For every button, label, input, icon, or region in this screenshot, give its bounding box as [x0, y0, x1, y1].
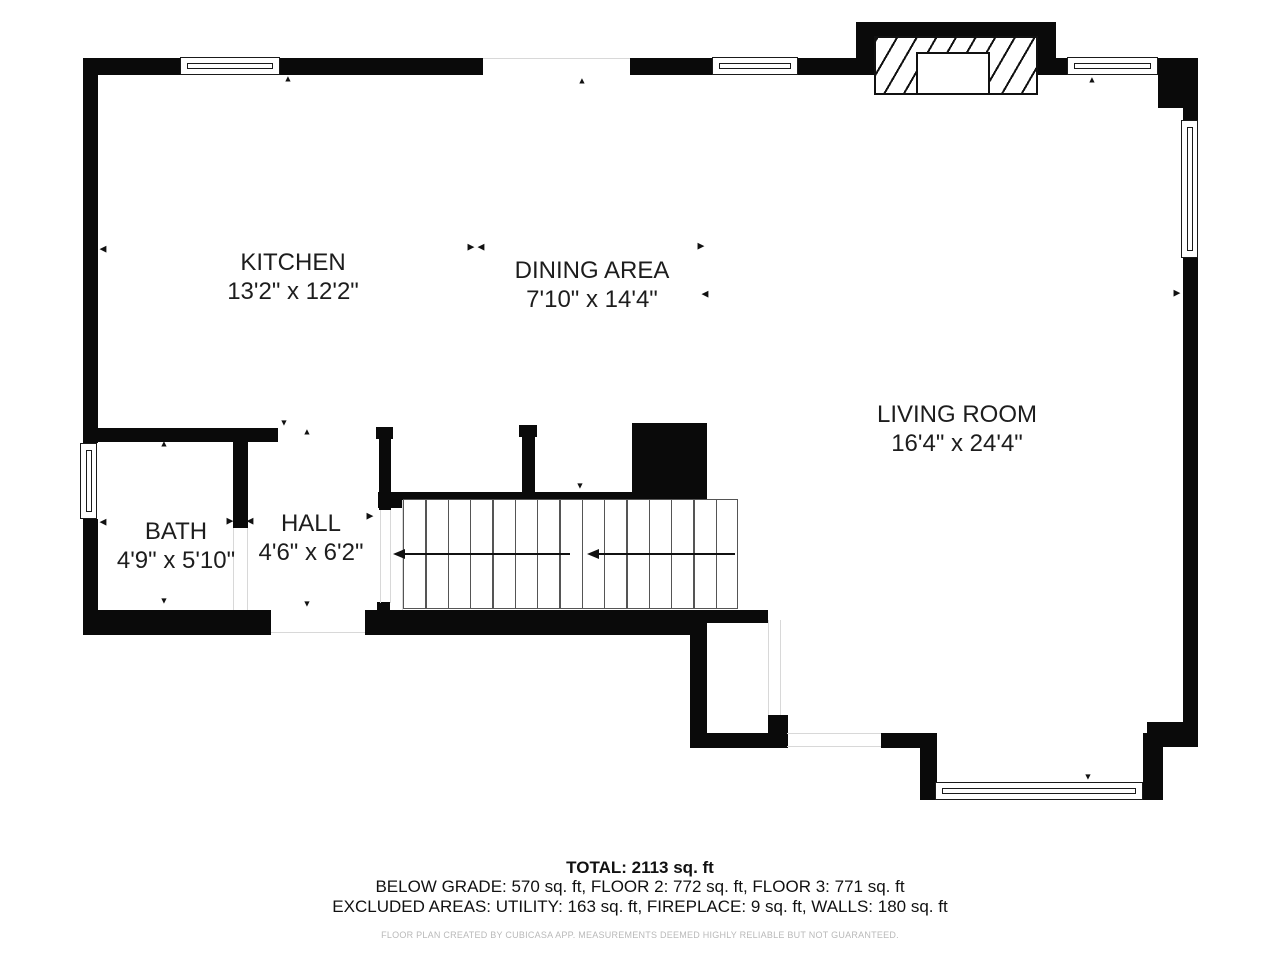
direction-arrow-icon: ▼	[576, 482, 585, 491]
wall-segment	[1183, 256, 1198, 747]
direction-arrow-icon: ▼	[160, 597, 169, 606]
room-label-living-room: LIVING ROOM 16'4" x 24'4"	[877, 400, 1037, 458]
room-label-hall: HALL 4'6" x 6'2"	[259, 509, 364, 567]
wall-segment	[83, 58, 98, 443]
wall-segment	[280, 58, 483, 75]
wall-segment	[690, 612, 707, 748]
stair-direction-arrow	[598, 553, 735, 555]
room-dimensions: 4'9" x 5'10"	[117, 546, 235, 575]
direction-arrow-icon: ▲	[284, 75, 293, 84]
opening-line	[390, 510, 391, 603]
room-name: BATH	[117, 517, 235, 546]
window	[1181, 120, 1198, 258]
room-label-bath: BATH 4'9" x 5'10"	[117, 517, 235, 575]
room-name: KITCHEN	[227, 248, 359, 277]
direction-arrow-icon: ▶	[468, 243, 475, 252]
total-area-text: TOTAL: 2113 sq. ft	[0, 858, 1280, 877]
wall-segment	[376, 427, 393, 439]
room-label-dining-area: DINING AREA 7'10" x 14'4"	[515, 256, 670, 314]
opening-line	[380, 510, 381, 603]
direction-arrow-icon: ◀	[100, 245, 107, 254]
wall-segment	[83, 428, 278, 442]
stair-direction-arrow	[404, 553, 570, 555]
opening-line	[780, 620, 781, 715]
room-label-kitchen: KITCHEN 13'2" x 12'2"	[227, 248, 359, 306]
wall-segment	[377, 602, 390, 611]
wall-segment	[1143, 733, 1163, 800]
window-glass-line	[187, 63, 273, 68]
direction-arrow-icon: ◀	[100, 518, 107, 527]
floor-plan-page: ▲▲▲▲▲▼▼▼▼▼◀◀◀◀◀▶▶▶▶▶ KITCHEN 13'2" x 12'…	[0, 0, 1280, 960]
direction-arrow-icon: ▶	[1174, 289, 1181, 298]
floor-plan-canvas: ▲▲▲▲▲▼▼▼▼▼◀◀◀◀◀▶▶▶▶▶	[0, 0, 1280, 960]
room-dimensions: 4'6" x 6'2"	[259, 538, 364, 567]
window-glass-line	[86, 450, 92, 512]
disclaimer-text: FLOOR PLAN CREATED BY CUBICASA APP. MEAS…	[0, 930, 1280, 940]
area-summary: TOTAL: 2113 sq. ft BELOW GRADE: 570 sq. …	[0, 858, 1280, 940]
wall-segment	[632, 423, 707, 500]
direction-arrow-icon: ▲	[160, 440, 169, 449]
window-glass-line	[1187, 127, 1193, 251]
window-glass-line	[942, 788, 1136, 793]
direction-arrow-icon: ◀	[247, 517, 254, 526]
window	[1067, 57, 1158, 75]
wall-segment	[630, 58, 712, 75]
window-glass-line	[1074, 63, 1151, 68]
direction-arrow-icon: ▲	[578, 77, 587, 86]
opening-line	[247, 528, 248, 610]
direction-arrow-icon: ▶	[698, 242, 705, 251]
direction-arrow-icon: ▼	[1084, 773, 1093, 782]
stair-arrow-head-icon	[393, 549, 405, 559]
floor-areas-text: BELOW GRADE: 570 sq. ft, FLOOR 2: 772 sq…	[0, 877, 1280, 897]
room-name: DINING AREA	[515, 256, 670, 285]
opening-line	[787, 733, 881, 734]
stair-arrow-head-icon	[587, 549, 599, 559]
direction-arrow-icon: ▶	[367, 512, 374, 521]
room-dimensions: 16'4" x 24'4"	[877, 429, 1037, 458]
opening-line	[483, 58, 630, 59]
direction-arrow-icon: ▲	[303, 428, 312, 437]
direction-arrow-icon: ▼	[303, 600, 312, 609]
window	[712, 57, 798, 75]
wall-segment	[519, 425, 537, 437]
fireplace-firebox	[916, 52, 990, 95]
opening-line	[768, 620, 769, 715]
room-name: HALL	[259, 509, 364, 538]
direction-arrow-icon: ◀	[478, 243, 485, 252]
room-dimensions: 7'10" x 14'4"	[515, 285, 670, 314]
direction-arrow-icon: ◀	[702, 290, 709, 299]
window	[180, 57, 280, 75]
wall-segment	[881, 733, 937, 748]
wall-segment	[522, 437, 535, 494]
excluded-areas-text: EXCLUDED AREAS: UTILITY: 163 sq. ft, FIR…	[0, 897, 1280, 917]
wall-segment	[1183, 58, 1198, 122]
window	[935, 782, 1143, 800]
stair-tread	[582, 500, 583, 608]
opening-line	[787, 746, 881, 747]
opening-line	[271, 632, 365, 633]
wall-segment	[83, 610, 271, 635]
room-name: LIVING ROOM	[877, 400, 1037, 429]
window-glass-line	[719, 63, 791, 68]
wall-segment	[798, 58, 858, 75]
wall-segment	[768, 715, 788, 748]
wall-segment	[365, 610, 692, 635]
room-dimensions: 13'2" x 12'2"	[227, 277, 359, 306]
direction-arrow-icon: ▼	[280, 419, 289, 428]
window	[80, 443, 97, 519]
direction-arrow-icon: ▲	[1088, 76, 1097, 85]
